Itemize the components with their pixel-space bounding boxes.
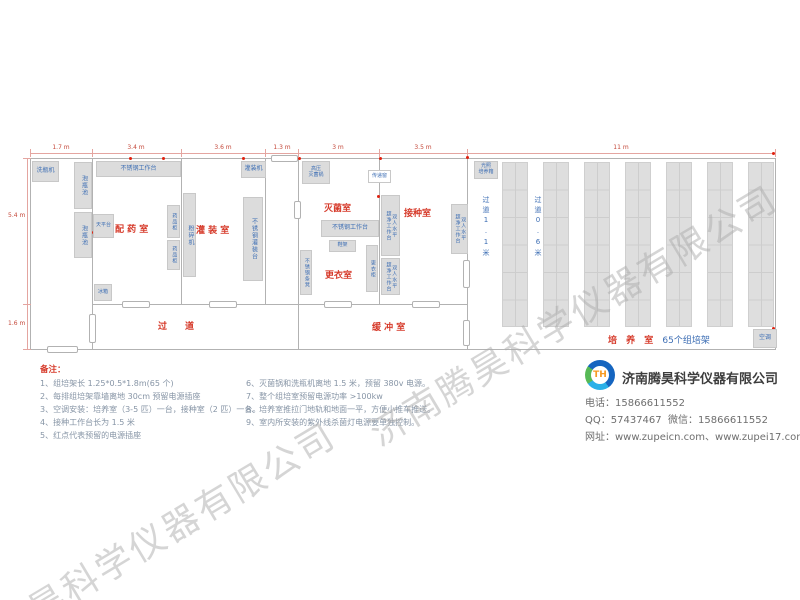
dimension-tick [775, 149, 776, 157]
note-item: 7、整个组培室预留电源功率 >100kw [246, 390, 446, 403]
room-label-buffer: 缓 冲 室 [372, 320, 405, 333]
wall [30, 349, 776, 350]
dimension-tick [181, 149, 182, 157]
floor-plan-layer: 1.7 m3.4 m3.6 m1.3 m3 m3.5 m11 m5.4 m1.6… [0, 0, 800, 600]
company-name: 济南腾昊科学仪器有限公司 [622, 368, 778, 387]
filling-machine-box: 灌装机 [241, 161, 266, 178]
power-outlet-dot [129, 157, 132, 160]
website-urls: www.zupeicn.com、www.zupei17.com [615, 432, 800, 443]
notes-title: 备注： [40, 364, 240, 377]
dimension-tick [298, 149, 299, 157]
aisle-label-1-1m: 过道1.1米 [481, 196, 491, 254]
dimension-tick [23, 158, 31, 159]
autoclave-box: 高压 灭菌锅 [302, 161, 330, 184]
phone-number: 15866611552 [615, 398, 685, 409]
pass-window-box: 传递窗 [368, 170, 391, 183]
wall [298, 158, 299, 350]
dimension-tick [265, 149, 266, 157]
shoe-rack-box: 鞋架 [329, 240, 356, 252]
note-item: 4、接种工作台长为 1.5 米 [40, 416, 240, 429]
medicine-cabinet-box-2: 药品柜 [167, 240, 180, 270]
dimension-label: 3.6 m [214, 144, 231, 151]
wall [30, 158, 776, 159]
power-outlet-dot [377, 195, 380, 198]
dimension-tick [379, 149, 380, 157]
culture-rack-count: 65个组培架 [662, 336, 709, 346]
note-item: 5、红点代表预留的电源插座 [40, 429, 240, 442]
room-label-inoculation: 接种室 [404, 206, 431, 219]
floor-plan-canvas: 1.7 m3.4 m3.6 m1.3 m3 m3.5 m11 m5.4 m1.6… [0, 0, 800, 600]
dimension-label: 1.6 m [8, 320, 25, 327]
website-label: 网址： [585, 432, 615, 443]
room-label-changing: 更衣室 [325, 268, 352, 281]
note-item: 8、培养室推拉门地轨和地面一平，方便小推车推送。 [246, 403, 446, 416]
dimension-tick [30, 149, 31, 157]
dimension-label: 3.5 m [414, 144, 431, 151]
power-outlet-dot [162, 157, 165, 160]
note-item: 2、每排组培架靠墙离地 30cm 预留电源插座 [40, 390, 240, 403]
culture-rack [748, 162, 774, 327]
room-label-preparation: 配 药 室 [115, 222, 148, 235]
room-label-culture: 培 养 室 65个组培架 [608, 333, 710, 346]
culture-rack [543, 162, 569, 327]
steel-filling-table-box: 不锈钢灌装台 [243, 197, 263, 281]
wall [30, 158, 31, 350]
power-outlet-dot [379, 157, 382, 160]
note-item: 3、空调安装：培养室（3-5 匹）一台，接种室（2 匹）一台。 [40, 403, 240, 416]
soak-pool-box-2: 泡瓶池 [74, 212, 92, 258]
balance-table-box: 天平台 [93, 214, 114, 238]
dimension-label: 1.3 m [273, 144, 290, 151]
steel-worktable-box-2: 不锈钢工作台 [321, 220, 379, 237]
fridge-box: 冰箱 [94, 284, 112, 301]
door-leaf [122, 301, 150, 308]
door-leaf [324, 301, 352, 308]
qq-label: QQ： [585, 415, 611, 426]
website-line: 网址：www.zupeicn.com、www.zupei17.com [585, 428, 800, 443]
dimension-tick [92, 149, 93, 157]
steel-worktable-box-1: 不锈钢工作台 [96, 161, 181, 177]
door-leaf [47, 346, 78, 353]
dimension-line [27, 158, 28, 350]
qq-number: 57437467 [611, 415, 662, 426]
wall [775, 158, 776, 350]
room-label-filling: 灌 装 室 [196, 223, 229, 236]
clean-bench-box-2: 双人水平 超净工作台 [381, 258, 400, 295]
note-item: 9、室内所安装的紫外线杀菌灯电源要单独控制。 [246, 416, 446, 429]
culture-rack [584, 162, 610, 327]
phone-label: 电话： [585, 398, 615, 409]
note-item: 6、灭菌锅和洗瓶机离地 1.5 米，预留 380v 电源。 [246, 377, 446, 390]
wall [265, 158, 266, 305]
door-leaf [294, 201, 301, 219]
wechat-label: 微信： [668, 415, 698, 426]
dimension-tick [23, 304, 31, 305]
door-leaf [89, 314, 96, 343]
culture-rack [502, 162, 528, 327]
aisle-label-0-6m: 过道0.6米 [533, 196, 543, 254]
dimension-label: 3 m [332, 144, 344, 151]
culture-rack [666, 162, 692, 327]
bottle-washer-box: 洗瓶机 [32, 161, 59, 182]
power-outlet-dot [298, 157, 301, 160]
notes-left-column: 备注： 1、组培架长 1.25*0.5*1.8m(65 个)2、每排组培架靠墙离… [40, 364, 240, 442]
dimension-label: 3.4 m [127, 144, 144, 151]
qq-wechat-line: QQ：57437467 微信：15866611552 [585, 411, 768, 426]
clean-bench-box-3: 双人水平 超净工作台 [451, 204, 468, 254]
light-incubator-box: 光照 培养箱 [474, 161, 498, 179]
steel-bench-box: 不锈钢条凳 [300, 250, 312, 295]
soak-pool-box-1: 泡瓶池 [74, 162, 92, 209]
clean-bench-box-1: 双人水平 超净工作台 [381, 195, 400, 256]
power-outlet-dot [242, 157, 245, 160]
power-outlet-dot [772, 152, 775, 155]
door-leaf [271, 155, 298, 162]
door-leaf [209, 301, 237, 308]
room-label-corridor: 过 道 [158, 319, 194, 332]
dimension-line [30, 153, 776, 154]
wall [181, 158, 182, 305]
dimension-label: 5.4 m [8, 212, 25, 219]
culture-rack [707, 162, 733, 327]
culture-rack [625, 162, 651, 327]
dimension-label: 11 m [613, 144, 628, 151]
room-label-sterilization: 灭菌室 [324, 201, 351, 214]
notes-right-column: 6、灭菌锅和洗瓶机离地 1.5 米，预留 380v 电源。7、整个组培室预留电源… [246, 377, 446, 429]
grinder-box: 粉碎机 [183, 193, 196, 277]
door-leaf [463, 260, 470, 288]
air-conditioner-box: 空调 [753, 329, 777, 348]
locker-box: 更衣柜 [366, 245, 378, 292]
medicine-cabinet-box-1: 药品柜 [167, 205, 180, 238]
company-logo-icon: TH [585, 360, 615, 390]
culture-room-name: 培 养 室 [608, 336, 662, 346]
note-item: 1、组培架长 1.25*0.5*1.8m(65 个) [40, 377, 240, 390]
wechat-number: 15866611552 [698, 415, 768, 426]
door-leaf [463, 320, 470, 346]
dimension-tick [23, 349, 31, 350]
phone-line: 电话：15866611552 [585, 394, 685, 409]
logo-monogram: TH [591, 366, 609, 384]
door-leaf [412, 301, 440, 308]
dimension-label: 1.7 m [52, 144, 69, 151]
power-outlet-dot [466, 156, 469, 159]
